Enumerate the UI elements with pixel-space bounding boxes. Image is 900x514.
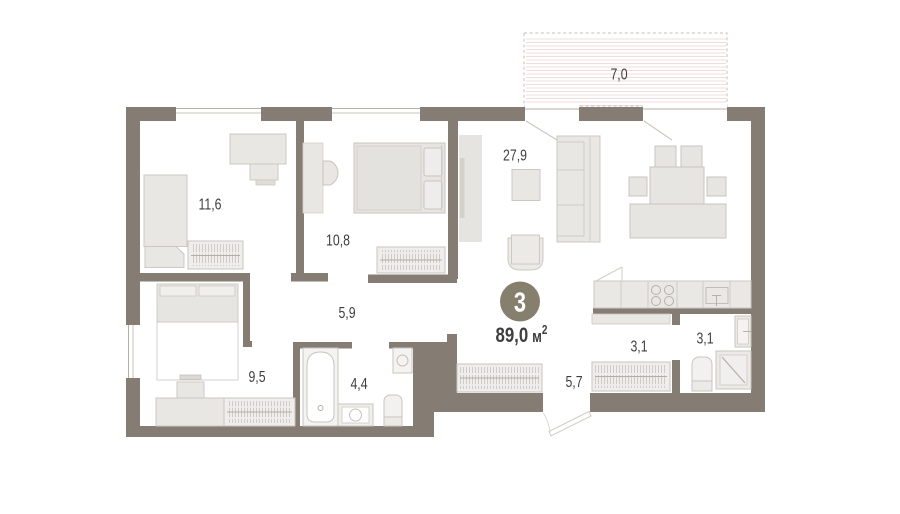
svg-text:89,0м2: 89,0м2 bbox=[496, 324, 548, 347]
svg-text:9,5: 9,5 bbox=[248, 369, 265, 387]
svg-text:7,0: 7,0 bbox=[610, 66, 627, 84]
svg-text:10,8: 10,8 bbox=[326, 232, 350, 250]
svg-text:3: 3 bbox=[514, 287, 526, 318]
svg-text:3,1: 3,1 bbox=[630, 338, 647, 356]
svg-text:5,9: 5,9 bbox=[338, 305, 355, 323]
svg-text:27,9: 27,9 bbox=[503, 147, 527, 165]
svg-text:11,6: 11,6 bbox=[198, 196, 221, 214]
svg-text:3,1: 3,1 bbox=[696, 330, 713, 348]
svg-text:4,4: 4,4 bbox=[350, 376, 367, 394]
svg-text:5,7: 5,7 bbox=[565, 374, 582, 392]
